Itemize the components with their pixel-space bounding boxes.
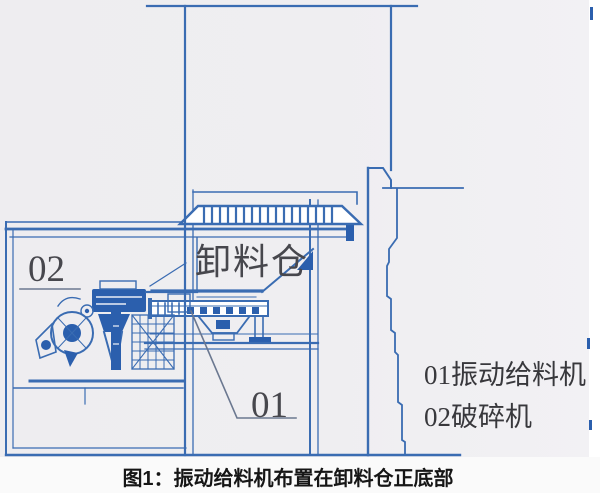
callout-02-label: 02 (28, 250, 65, 291)
callout-01-label: 01 (251, 386, 288, 427)
walkway-beam (180, 192, 361, 224)
figure-1-diagram: 卸料仓 02 01 01振动给料机 02破碎机 图1：振动给料机布置在卸料仓正底… (0, 0, 600, 493)
scan-edge (587, 0, 600, 457)
figure-caption: 图1：振动给料机布置在卸料仓正底部 (0, 462, 600, 491)
legend-line-2: 02破碎机 (424, 395, 532, 434)
bin-label: 卸料仓 (195, 243, 309, 283)
legend-line-1: 01振动给料机 (424, 353, 586, 392)
